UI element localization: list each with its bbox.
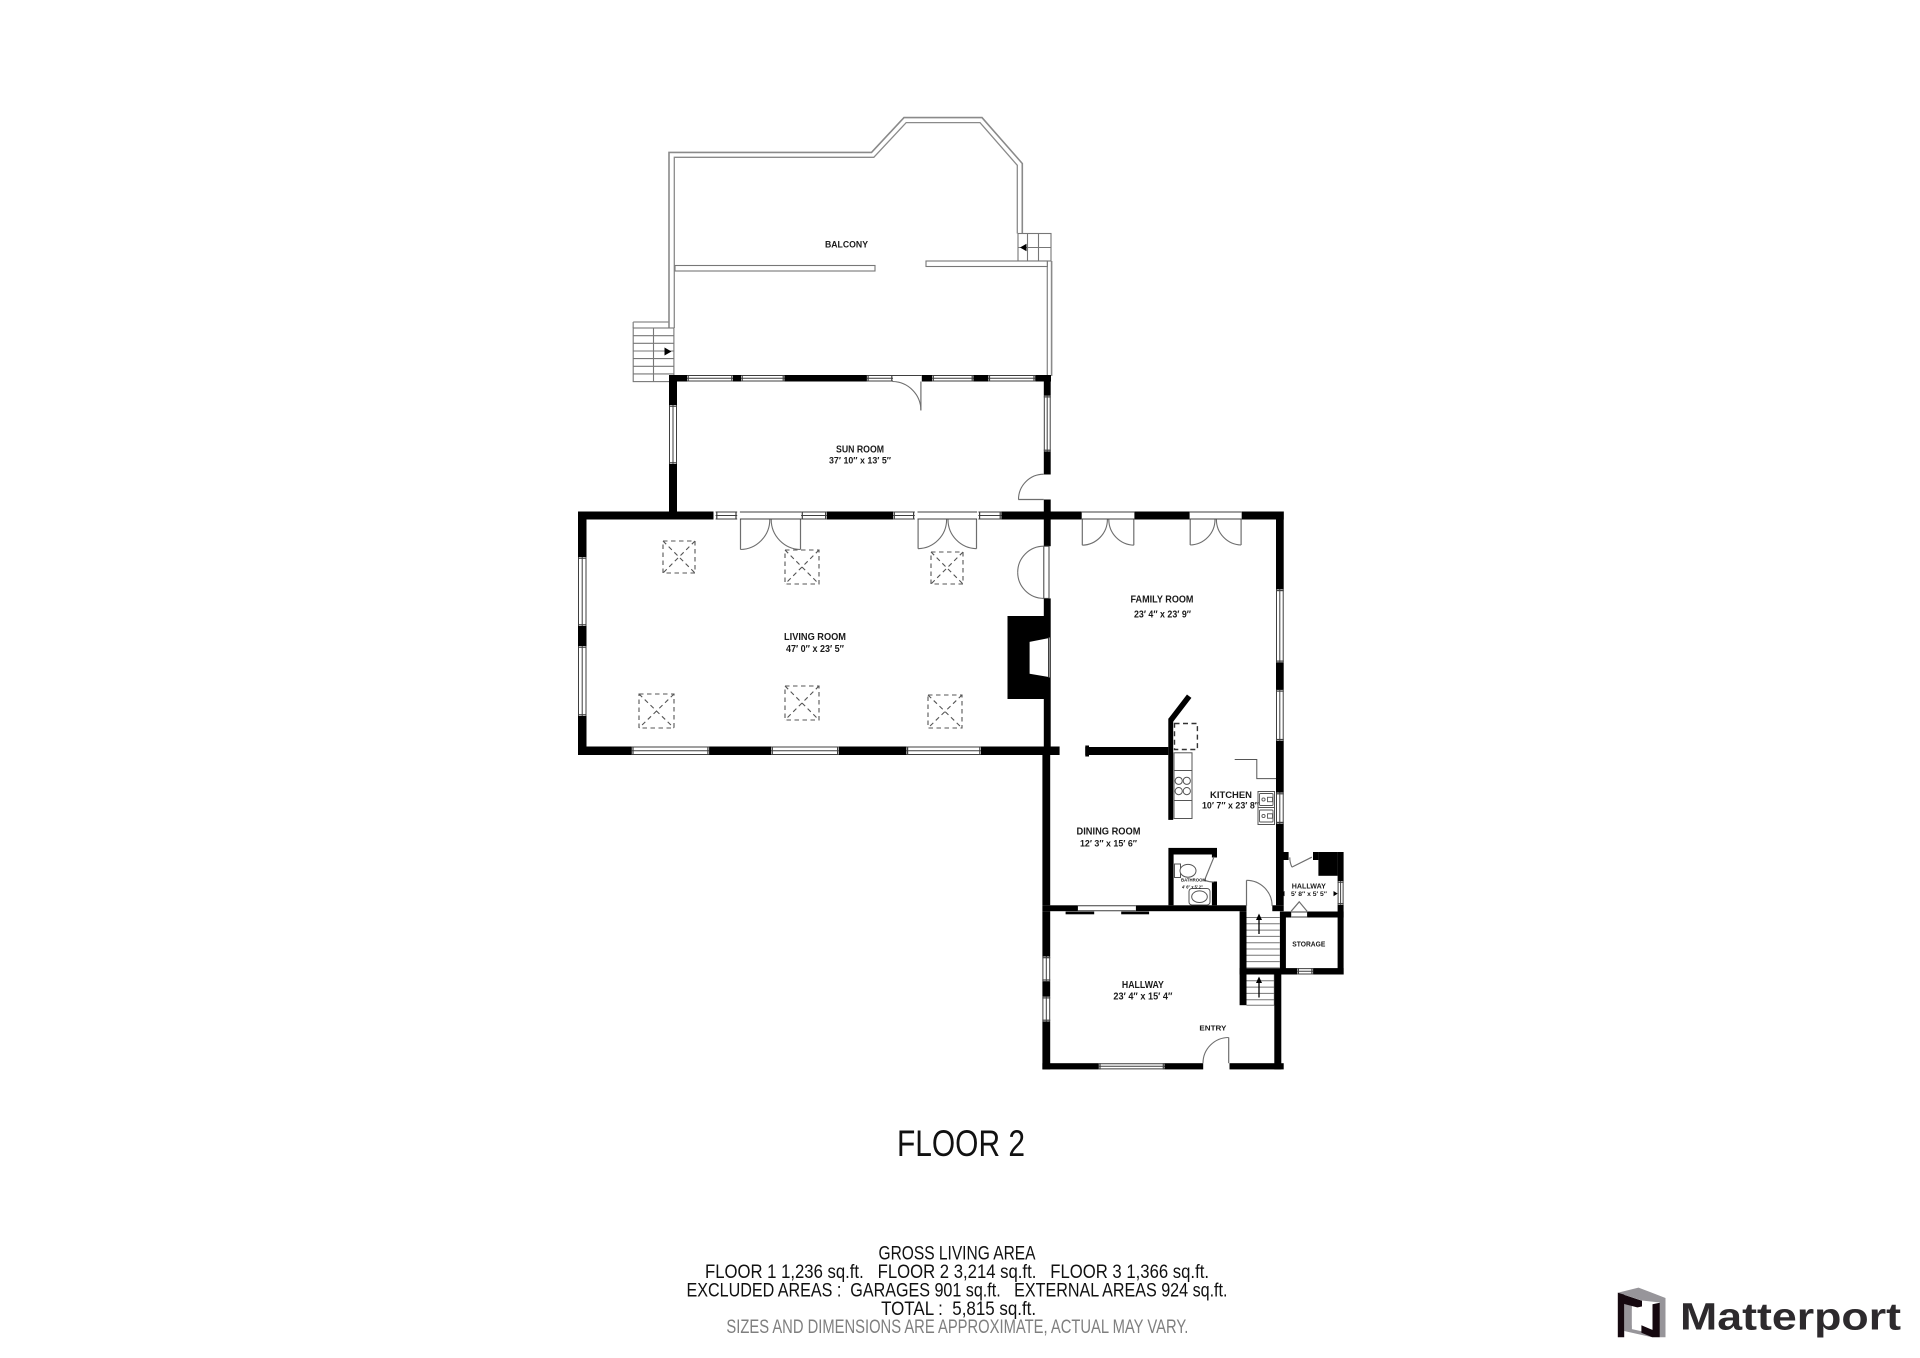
svg-text:BALCONY: BALCONY <box>825 240 869 251</box>
svg-text:23′ 4″ x 23′ 9″: 23′ 4″ x 23′ 9″ <box>1134 610 1191 621</box>
svg-text:STORAGE: STORAGE <box>1292 940 1325 949</box>
svg-text:37′ 10″ x 13′ 5″: 37′ 10″ x 13′ 5″ <box>829 456 891 467</box>
svg-text:4′ 6″ x 5′ 2″: 4′ 6″ x 5′ 2″ <box>1182 885 1203 890</box>
svg-text:DINING ROOM: DINING ROOM <box>1077 827 1141 838</box>
svg-text:10′ 7″ x 23′ 8″: 10′ 7″ x 23′ 8″ <box>1202 800 1260 810</box>
svg-text:23′ 4″ x 15′ 4″: 23′ 4″ x 15′ 4″ <box>1113 992 1172 1003</box>
svg-text:ENTRY: ENTRY <box>1199 1026 1226 1033</box>
svg-text:12′ 3″ x 15′ 6″: 12′ 3″ x 15′ 6″ <box>1080 838 1137 849</box>
svg-text:KITCHEN: KITCHEN <box>1210 790 1252 801</box>
svg-text:47′ 0″ x 23′ 5″: 47′ 0″ x 23′ 5″ <box>786 644 844 655</box>
svg-text:LIVING ROOM: LIVING ROOM <box>784 631 846 643</box>
svg-text:HALLWAY: HALLWAY <box>1122 979 1164 991</box>
svg-text:BATHROOM: BATHROOM <box>1181 878 1206 883</box>
svg-text:SIZES AND DIMENSIONS ARE APPRO: SIZES AND DIMENSIONS ARE APPROXIMATE, AC… <box>726 1316 1188 1338</box>
svg-text:HALLWAY: HALLWAY <box>1292 883 1326 890</box>
svg-text:FAMILY ROOM: FAMILY ROOM <box>1131 594 1194 606</box>
svg-text:SUN ROOM: SUN ROOM <box>836 445 884 456</box>
svg-text:FLOOR 2: FLOOR 2 <box>897 1123 1025 1164</box>
svg-text:Matterport: Matterport <box>1680 1297 1901 1339</box>
svg-text:5′ 8″ x 5′ 5″: 5′ 8″ x 5′ 5″ <box>1291 891 1328 898</box>
